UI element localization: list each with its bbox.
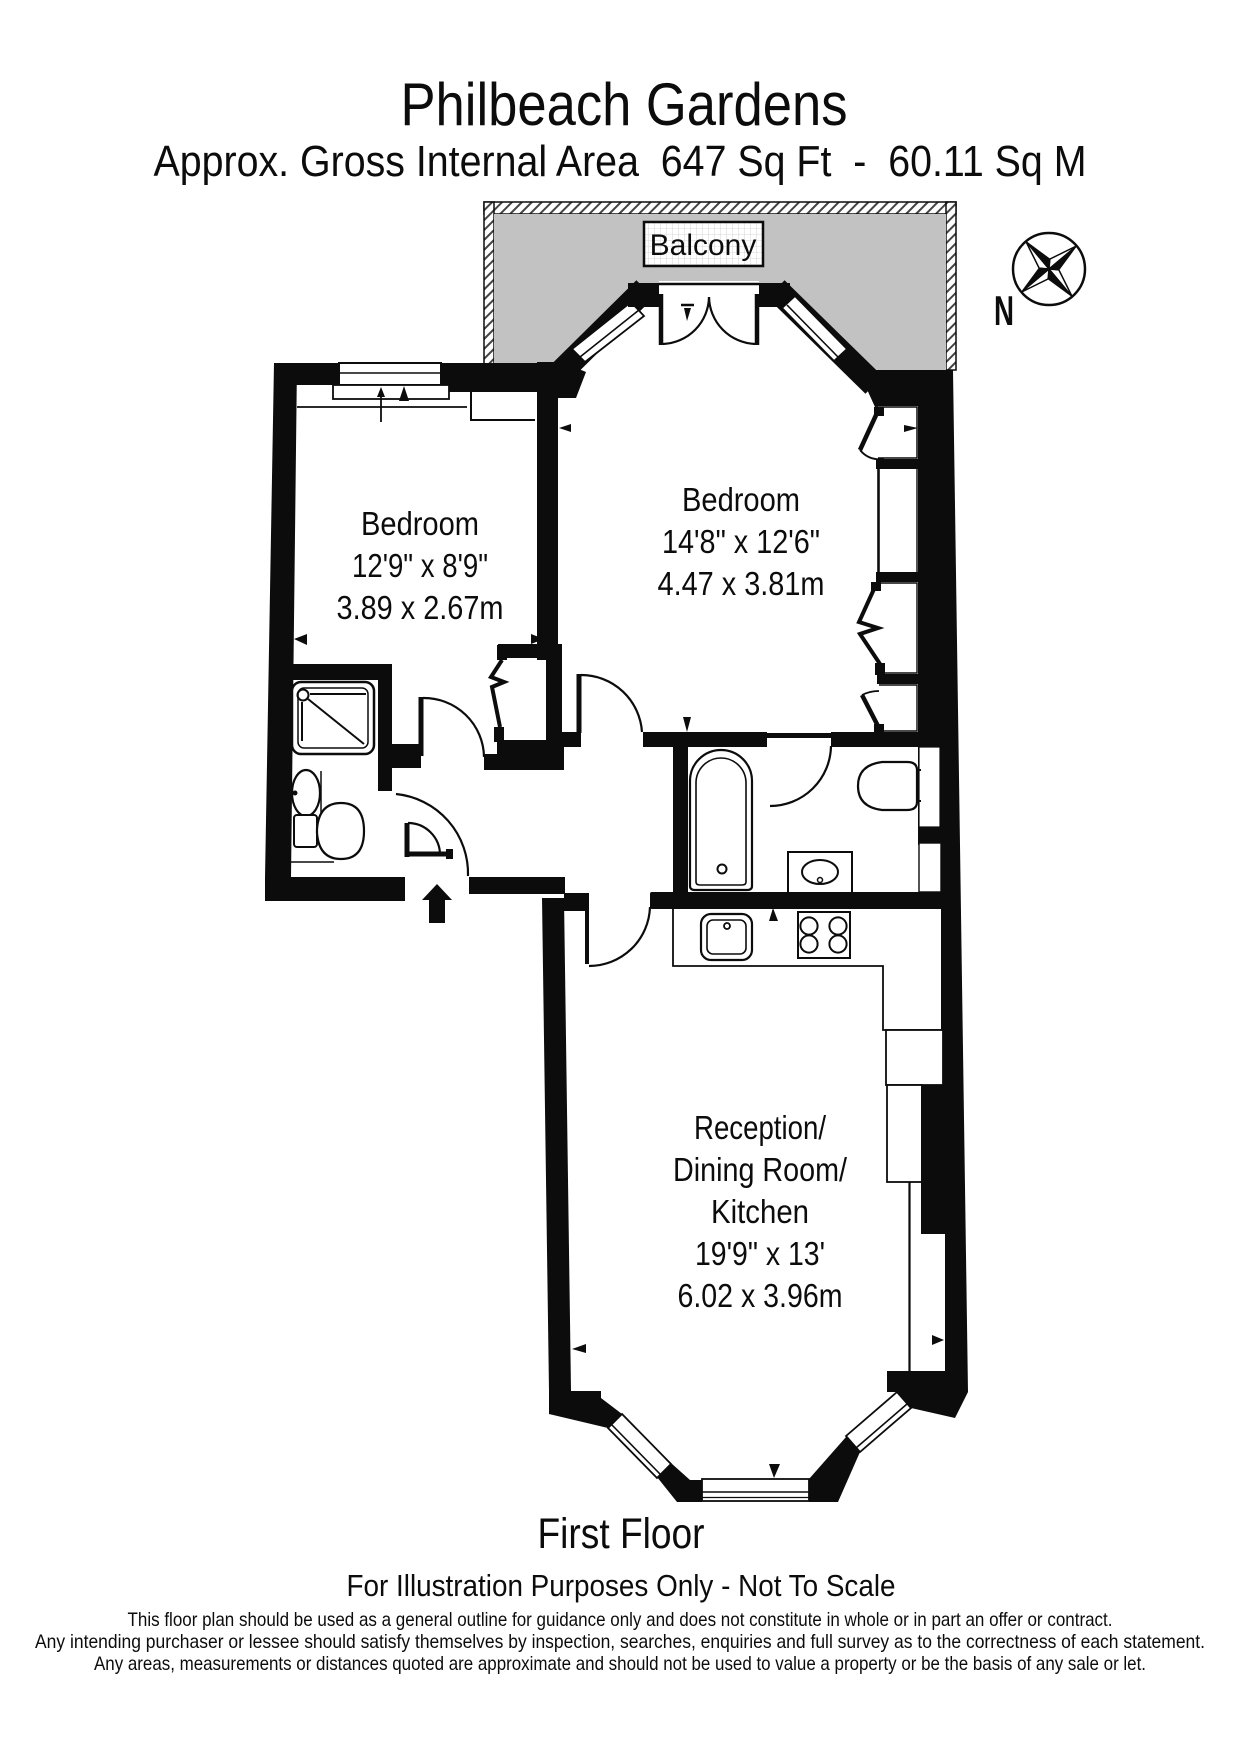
- svg-text:Approx. Gross Internal Area 6: Approx. Gross Internal Area 647 Sq Ft - …: [154, 137, 1087, 186]
- svg-text:N: N: [994, 287, 1014, 334]
- svg-text:12'9" x 8'9": 12'9" x 8'9": [352, 547, 488, 584]
- svg-text:19'9" x 13': 19'9" x 13': [695, 1235, 825, 1272]
- svg-text:Kitchen: Kitchen: [711, 1193, 809, 1230]
- svg-text:14'8" x 12'6": 14'8" x 12'6": [662, 523, 820, 560]
- svg-text:Philbeach Gardens: Philbeach Gardens: [401, 71, 848, 138]
- svg-text:6.02 x 3.96m: 6.02 x 3.96m: [678, 1277, 843, 1314]
- svg-text:4.47 x 3.81m: 4.47 x 3.81m: [658, 565, 825, 602]
- svg-text:Bedroom: Bedroom: [361, 505, 479, 542]
- svg-text:Dining Room/: Dining Room/: [673, 1151, 848, 1188]
- svg-text:First Floor: First Floor: [538, 1510, 705, 1558]
- svg-text:Reception/: Reception/: [694, 1109, 827, 1146]
- svg-text:Bedroom: Bedroom: [682, 481, 800, 518]
- svg-text:This floor plan should be used: This floor plan should be used as a gene…: [128, 1609, 1113, 1631]
- svg-text:Any intending purchaser or les: Any intending purchaser or lessee should…: [35, 1631, 1205, 1653]
- svg-text:For Illustration Purposes Only: For Illustration Purposes Only - Not To …: [347, 1568, 896, 1603]
- svg-text:Balcony: Balcony: [650, 229, 757, 262]
- svg-text:3.89 x 2.67m: 3.89 x 2.67m: [337, 589, 504, 626]
- svg-text:Any areas, measurements or dis: Any areas, measurements or distances quo…: [94, 1653, 1146, 1675]
